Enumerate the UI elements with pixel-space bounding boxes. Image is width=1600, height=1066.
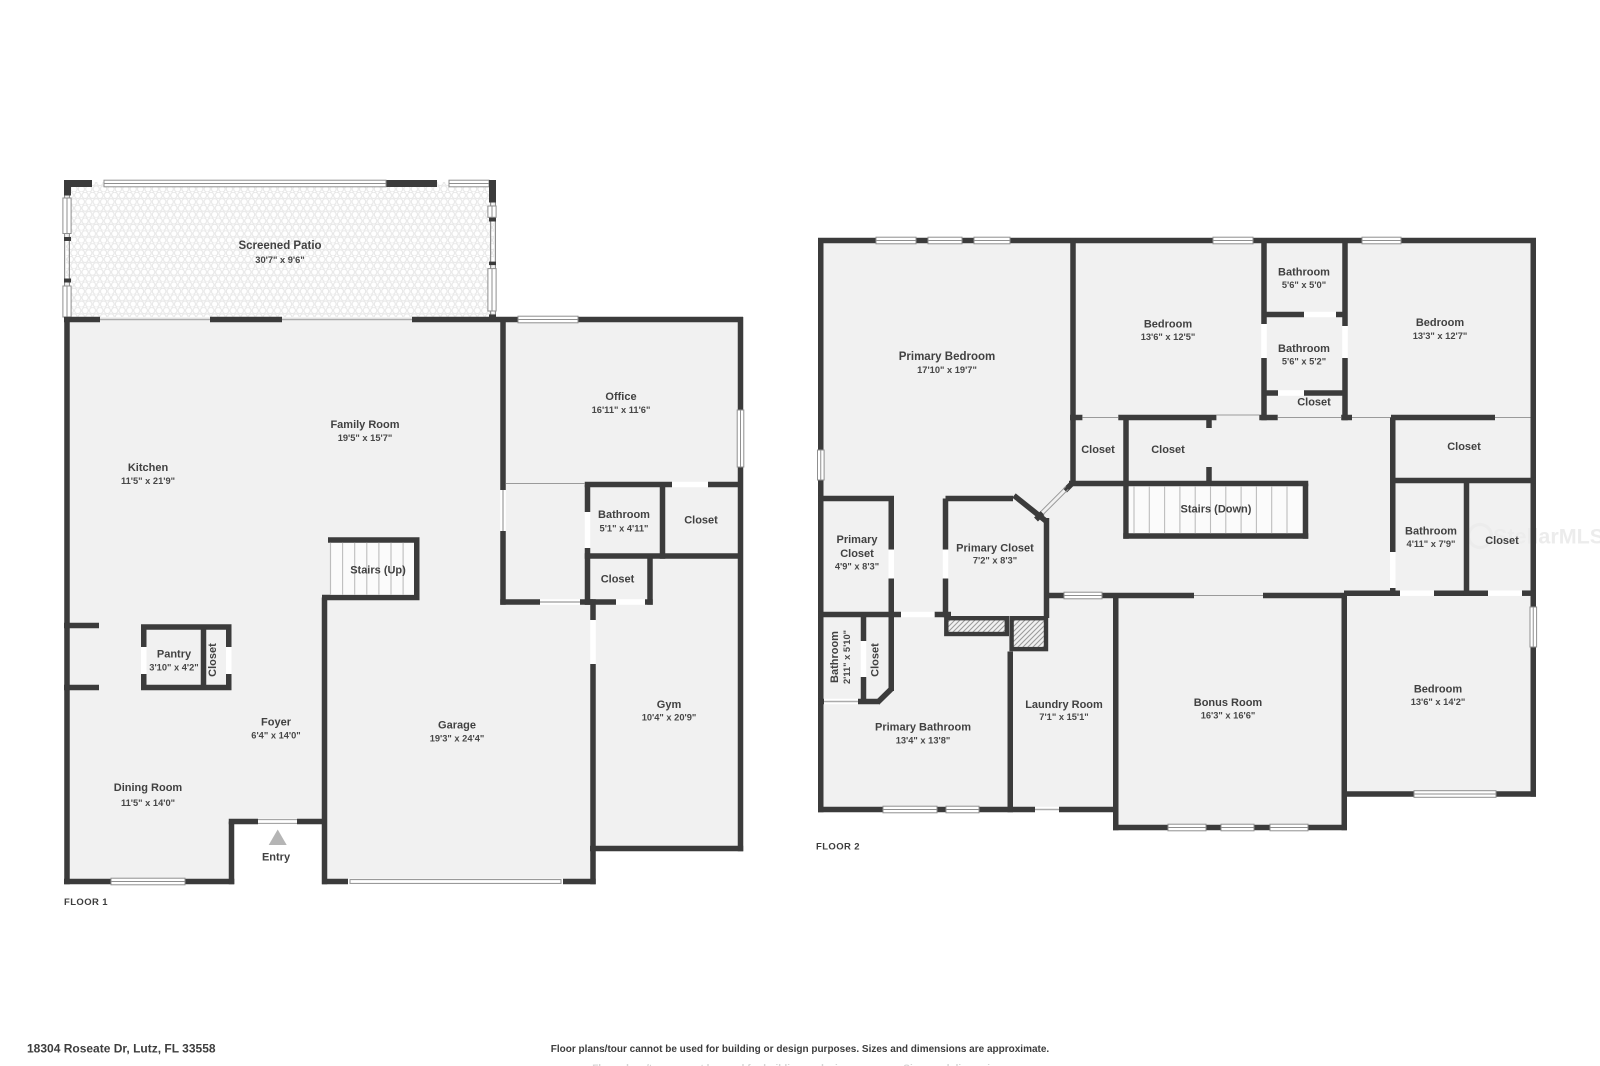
svg-text:FLOOR 2: FLOOR 2 (816, 842, 860, 853)
svg-text:Bathroom: Bathroom (1278, 267, 1330, 279)
svg-text:11'5" x 14'0": 11'5" x 14'0" (121, 798, 175, 808)
svg-text:Closet: Closet (870, 643, 882, 677)
svg-text:7'1" x 15'1": 7'1" x 15'1" (1039, 712, 1088, 722)
svg-text:Bathroom: Bathroom (829, 631, 841, 683)
svg-text:Bathroom: Bathroom (598, 509, 650, 521)
svg-text:Bathroom: Bathroom (1278, 343, 1330, 355)
svg-text:13'6" x 14'2": 13'6" x 14'2" (1411, 697, 1466, 707)
svg-text:10'4" x 20'9": 10'4" x 20'9" (642, 713, 697, 723)
svg-text:7'2" x 8'3": 7'2" x 8'3" (973, 556, 1017, 566)
svg-text:Closet: Closet (601, 574, 635, 586)
svg-text:Office: Office (605, 391, 636, 403)
svg-text:2'11" x 5'10": 2'11" x 5'10" (842, 630, 852, 684)
svg-text:19'5" x 15'7": 19'5" x 15'7" (338, 433, 393, 443)
svg-text:19'3" x 24'4": 19'3" x 24'4" (430, 734, 485, 744)
svg-text:3'10" x 4'2": 3'10" x 4'2" (149, 663, 198, 673)
svg-text:Floor plans/tour cannot be use: Floor plans/tour cannot be used for buil… (551, 1044, 1050, 1055)
svg-text:16'3" x 16'6": 16'3" x 16'6" (1201, 711, 1256, 721)
svg-text:Closet: Closet (1081, 444, 1115, 456)
svg-text:Kitchen: Kitchen (128, 462, 169, 474)
svg-text:Bonus Room: Bonus Room (1194, 697, 1263, 709)
svg-text:FLOOR 1: FLOOR 1 (64, 897, 108, 908)
svg-text:18304 Roseate Dr, Lutz, FL 335: 18304 Roseate Dr, Lutz, FL 33558 (27, 1042, 216, 1056)
svg-text:30'7" x 9'6": 30'7" x 9'6" (255, 255, 304, 265)
svg-text:Family Room: Family Room (330, 419, 399, 431)
svg-text:Foyer: Foyer (261, 717, 292, 729)
svg-text:Stairs (Up): Stairs (Up) (350, 565, 406, 577)
svg-text:11'5" x 21'9": 11'5" x 21'9" (121, 476, 175, 486)
svg-text:6'4" x 14'0": 6'4" x 14'0" (251, 731, 300, 741)
svg-text:Bedroom: Bedroom (1144, 319, 1193, 331)
svg-text:5'6" x 5'0": 5'6" x 5'0" (1282, 280, 1326, 290)
svg-text:Primary: Primary (837, 534, 879, 546)
svg-text:Dining Room: Dining Room (114, 782, 183, 794)
svg-text:Primary Closet: Primary Closet (956, 543, 1034, 555)
svg-text:13'3" x 12'7": 13'3" x 12'7" (1413, 331, 1468, 341)
svg-text:Screened Patio: Screened Patio (238, 240, 321, 252)
svg-text:Closet: Closet (1447, 441, 1481, 453)
svg-text:4'11" x 7'9": 4'11" x 7'9" (1407, 539, 1456, 549)
svg-text:Closet: Closet (840, 548, 874, 560)
svg-text:16'11" x 11'6": 16'11" x 11'6" (592, 405, 651, 415)
svg-text:Laundry Room: Laundry Room (1025, 699, 1103, 711)
svg-text:4'9" x 8'3": 4'9" x 8'3" (835, 562, 879, 572)
svg-text:Closet: Closet (207, 643, 219, 677)
svg-text:13'4" x 13'8": 13'4" x 13'8" (896, 736, 951, 746)
svg-text:5'1" x 4'11": 5'1" x 4'11" (600, 524, 649, 534)
svg-text:Bedroom: Bedroom (1414, 684, 1463, 696)
svg-text:Stairs (Down): Stairs (Down) (1181, 504, 1252, 516)
svg-text:Entry: Entry (262, 852, 291, 864)
svg-text:Bathroom: Bathroom (1405, 526, 1457, 538)
svg-text:Closet: Closet (1485, 535, 1519, 547)
svg-text:17'10" x 19'7": 17'10" x 19'7" (917, 365, 977, 375)
svg-text:Closet: Closet (684, 515, 718, 527)
svg-text:13'6" x 12'5": 13'6" x 12'5" (1141, 332, 1196, 342)
svg-text:Closet: Closet (1297, 397, 1331, 409)
svg-text:Closet: Closet (1151, 444, 1185, 456)
svg-text:Garage: Garage (438, 720, 476, 732)
svg-text:Primary Bedroom: Primary Bedroom (899, 351, 996, 363)
svg-text:Pantry: Pantry (157, 649, 192, 661)
svg-text:Gym: Gym (657, 699, 682, 711)
svg-text:Primary Bathroom: Primary Bathroom (875, 722, 971, 734)
svg-text:5'6" x 5'2": 5'6" x 5'2" (1282, 357, 1326, 367)
svg-text:Bedroom: Bedroom (1416, 317, 1465, 329)
